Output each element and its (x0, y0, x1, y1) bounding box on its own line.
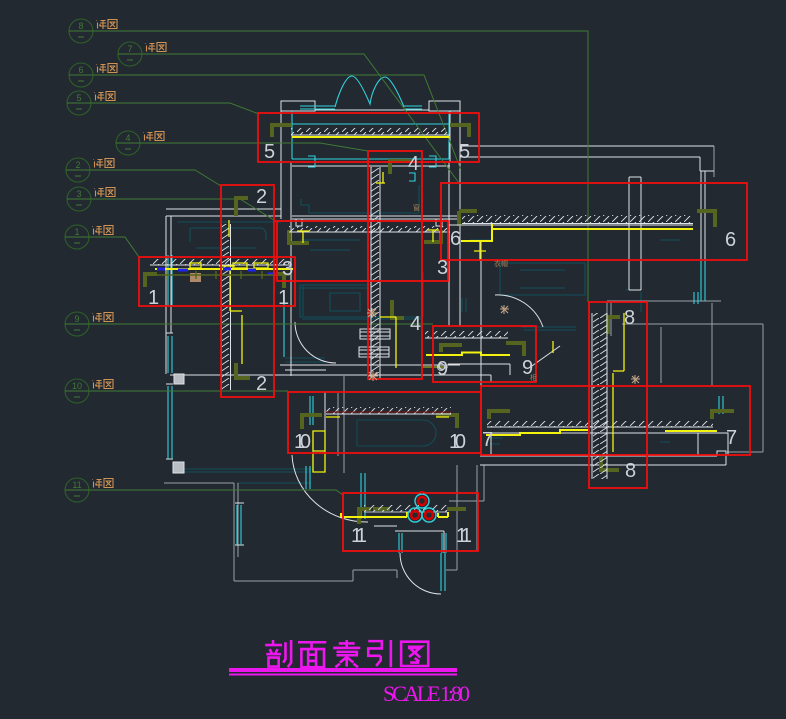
svg-text:8: 8 (624, 307, 635, 329)
svg-text:SCALE 1:80: SCALE 1:80 (383, 681, 470, 706)
svg-text:8: 8 (625, 460, 636, 482)
svg-text:9: 9 (74, 314, 79, 324)
svg-text:2: 2 (75, 160, 80, 170)
svg-text:11: 11 (456, 525, 472, 547)
svg-text:3: 3 (76, 189, 81, 199)
svg-text:11: 11 (72, 480, 81, 490)
svg-text:7: 7 (482, 429, 493, 451)
svg-text:衣帽: 衣帽 (494, 259, 508, 268)
svg-text:8: 8 (78, 21, 83, 31)
svg-text:6: 6 (78, 65, 83, 75)
svg-text:5: 5 (76, 93, 81, 103)
svg-text:2: 2 (256, 373, 267, 395)
svg-text:1: 1 (148, 287, 159, 309)
svg-text:3: 3 (282, 258, 293, 280)
svg-text:6: 6 (725, 229, 736, 251)
svg-text:10: 10 (72, 381, 82, 391)
svg-text:3: 3 (437, 257, 448, 279)
svg-text:4: 4 (410, 313, 421, 335)
svg-text:5: 5 (264, 141, 275, 163)
svg-text:5: 5 (459, 141, 470, 163)
svg-text:7: 7 (726, 427, 737, 449)
svg-text:10: 10 (449, 431, 466, 453)
svg-text:6: 6 (450, 228, 461, 250)
svg-text:9: 9 (437, 358, 448, 380)
svg-text:1: 1 (278, 287, 289, 309)
svg-text:9: 9 (522, 357, 533, 379)
svg-text:窗: 窗 (413, 203, 420, 212)
svg-text:10: 10 (294, 431, 311, 453)
svg-text:4: 4 (408, 153, 419, 175)
svg-text:4: 4 (125, 133, 130, 143)
svg-text:11: 11 (351, 525, 367, 547)
svg-text:2: 2 (256, 186, 267, 208)
svg-text:7: 7 (127, 44, 132, 54)
svg-text:1: 1 (74, 227, 79, 237)
